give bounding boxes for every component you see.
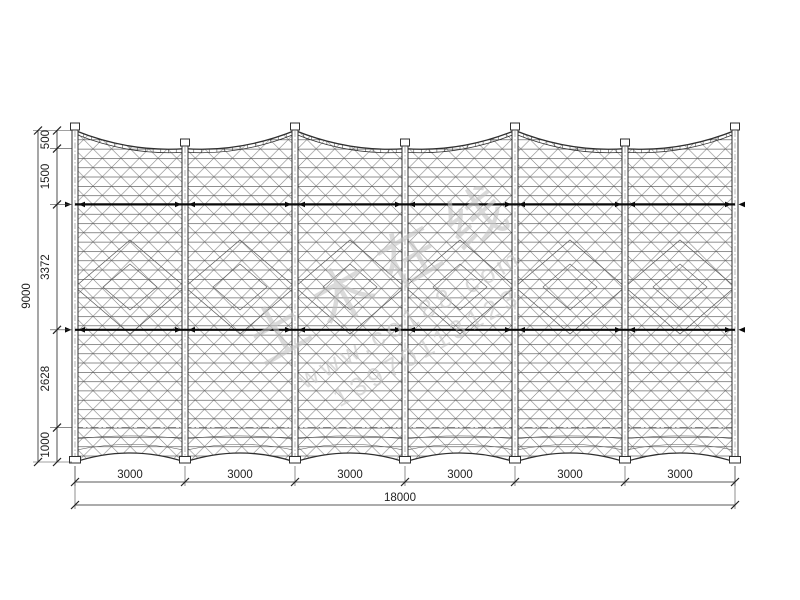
dim-width-seg-2: 3000 — [227, 469, 253, 481]
dim-height-seg-1000: 1000 — [40, 432, 52, 458]
dim-height-seg-3372: 3372 — [40, 254, 52, 280]
drawing-canvas: 土木在线 www.co188.com 13970113123 500 1500 … — [0, 0, 800, 600]
dim-height-seg-2628: 2628 — [40, 366, 52, 392]
dim-width-seg-5: 3000 — [557, 469, 583, 481]
dim-width-total: 18000 — [384, 492, 416, 504]
dim-height-total: 9000 — [21, 283, 33, 309]
fence-elevation-drawing: 500 1500 3372 2628 1000 9000 3000 3000 3… — [0, 0, 800, 600]
dim-width-seg-1: 3000 — [117, 469, 143, 481]
dim-height-seg-1500: 1500 — [40, 164, 52, 190]
dim-width-seg-4: 3000 — [447, 469, 473, 481]
dim-height-seg-500: 500 — [40, 130, 52, 149]
dim-width-seg-6: 3000 — [667, 469, 693, 481]
dim-width-seg-3: 3000 — [337, 469, 363, 481]
